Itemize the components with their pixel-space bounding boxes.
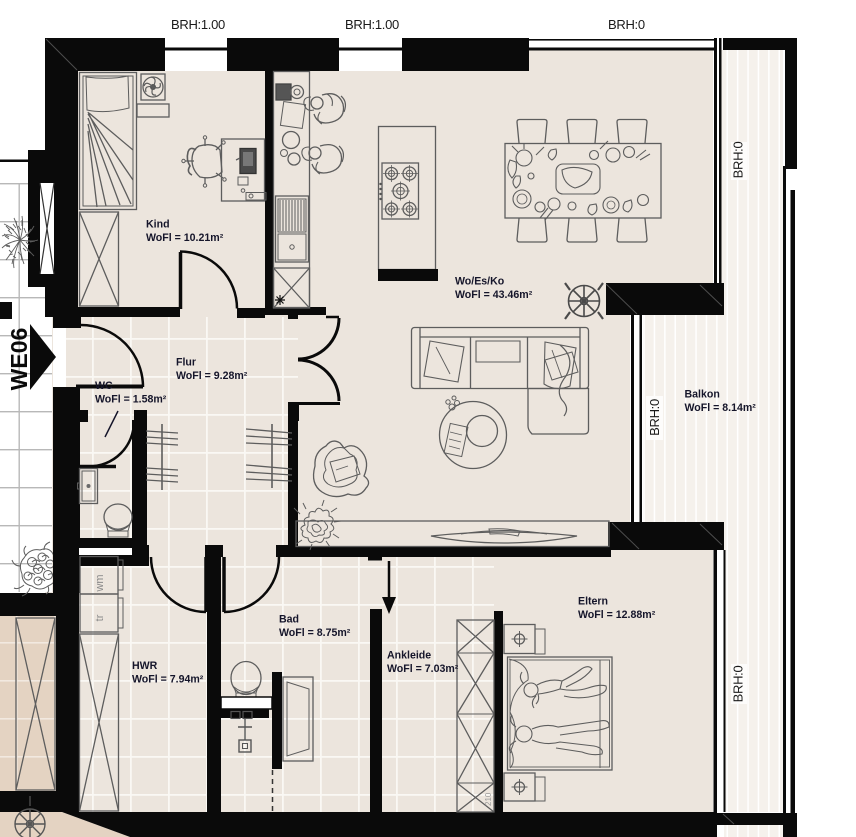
svg-text:WC: WC [95,380,113,392]
svg-text:WoFl = 7.94m²: WoFl = 7.94m² [132,673,204,685]
svg-text:BRH:1.00: BRH:1.00 [345,17,399,32]
svg-text:WoFl = 8.14m²: WoFl = 8.14m² [685,402,757,414]
svg-text:WoFl = 9.28m²: WoFl = 9.28m² [176,370,248,382]
svg-text:Kind: Kind [146,218,170,230]
svg-text:tr: tr [94,614,106,621]
svg-text:BRH:1.00: BRH:1.00 [171,17,225,32]
svg-text:Flur: Flur [176,357,196,369]
svg-text:Bad: Bad [279,613,299,625]
svg-text:Eltern: Eltern [578,596,608,608]
svg-text:WoFl = 10.21m²: WoFl = 10.21m² [146,232,224,244]
svg-text:WE06: WE06 [6,328,32,391]
svg-text:Ankleide: Ankleide [387,650,431,662]
svg-text:Wo/Es/Ko: Wo/Es/Ko [455,275,505,287]
svg-text:WoFl = 1.58m²: WoFl = 1.58m² [95,394,167,406]
svg-text:WoFl = 43.46m²: WoFl = 43.46m² [455,289,533,301]
svg-text:BRH:0: BRH:0 [608,17,645,32]
svg-text:WoFl = 12.88m²: WoFl = 12.88m² [578,609,656,621]
svg-text:WoFl = 7.03m²: WoFl = 7.03m² [387,663,459,675]
svg-text:HWR: HWR [132,660,158,672]
svg-text:BRH:0: BRH:0 [647,399,662,436]
svg-text:BRH:0: BRH:0 [731,666,746,703]
svg-text:Balkon: Balkon [685,388,720,400]
svg-text:WoFl = 8.75m²: WoFl = 8.75m² [279,627,351,639]
svg-text:210: 210 [484,792,493,806]
svg-text:BRH:0: BRH:0 [731,142,746,179]
svg-text:wm: wm [94,574,106,592]
